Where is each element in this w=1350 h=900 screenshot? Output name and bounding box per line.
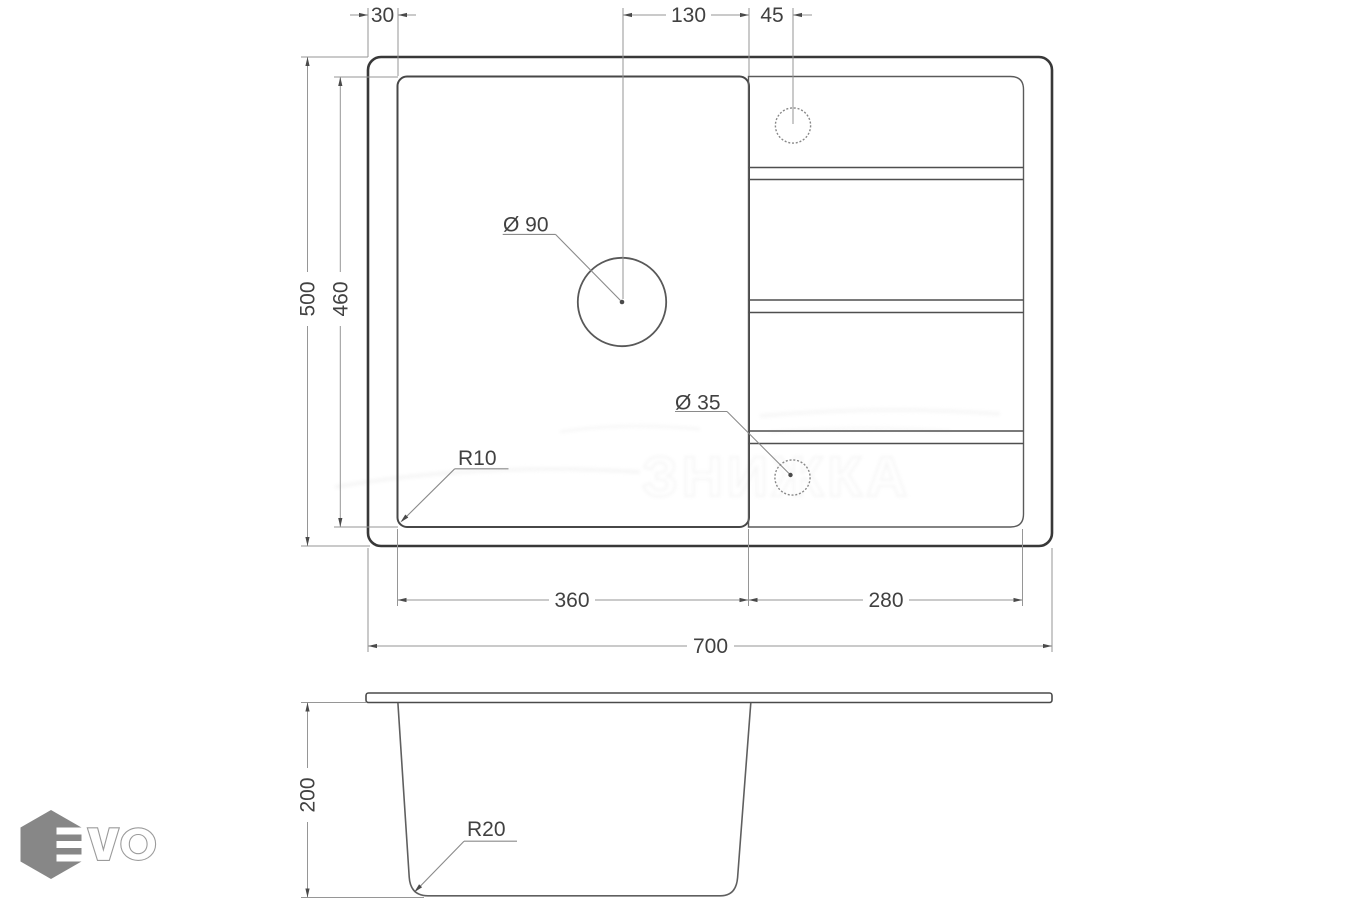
svg-text:500: 500 — [297, 281, 320, 316]
svg-text:R20: R20 — [467, 818, 506, 841]
svg-text:130: 130 — [671, 4, 706, 27]
svg-text:Ø 90: Ø 90 — [503, 214, 549, 237]
svg-text:R10: R10 — [458, 447, 497, 470]
svg-text:45: 45 — [760, 4, 783, 27]
svg-text:700: 700 — [693, 635, 728, 658]
svg-text:30: 30 — [371, 4, 394, 27]
svg-text:ЗНИЖКА: ЗНИЖКА — [642, 445, 911, 509]
svg-text:200: 200 — [297, 777, 320, 812]
svg-text:360: 360 — [554, 589, 589, 612]
svg-text:Ø 35: Ø 35 — [675, 392, 721, 415]
svg-text:460: 460 — [329, 281, 352, 316]
svg-text:280: 280 — [868, 589, 903, 612]
